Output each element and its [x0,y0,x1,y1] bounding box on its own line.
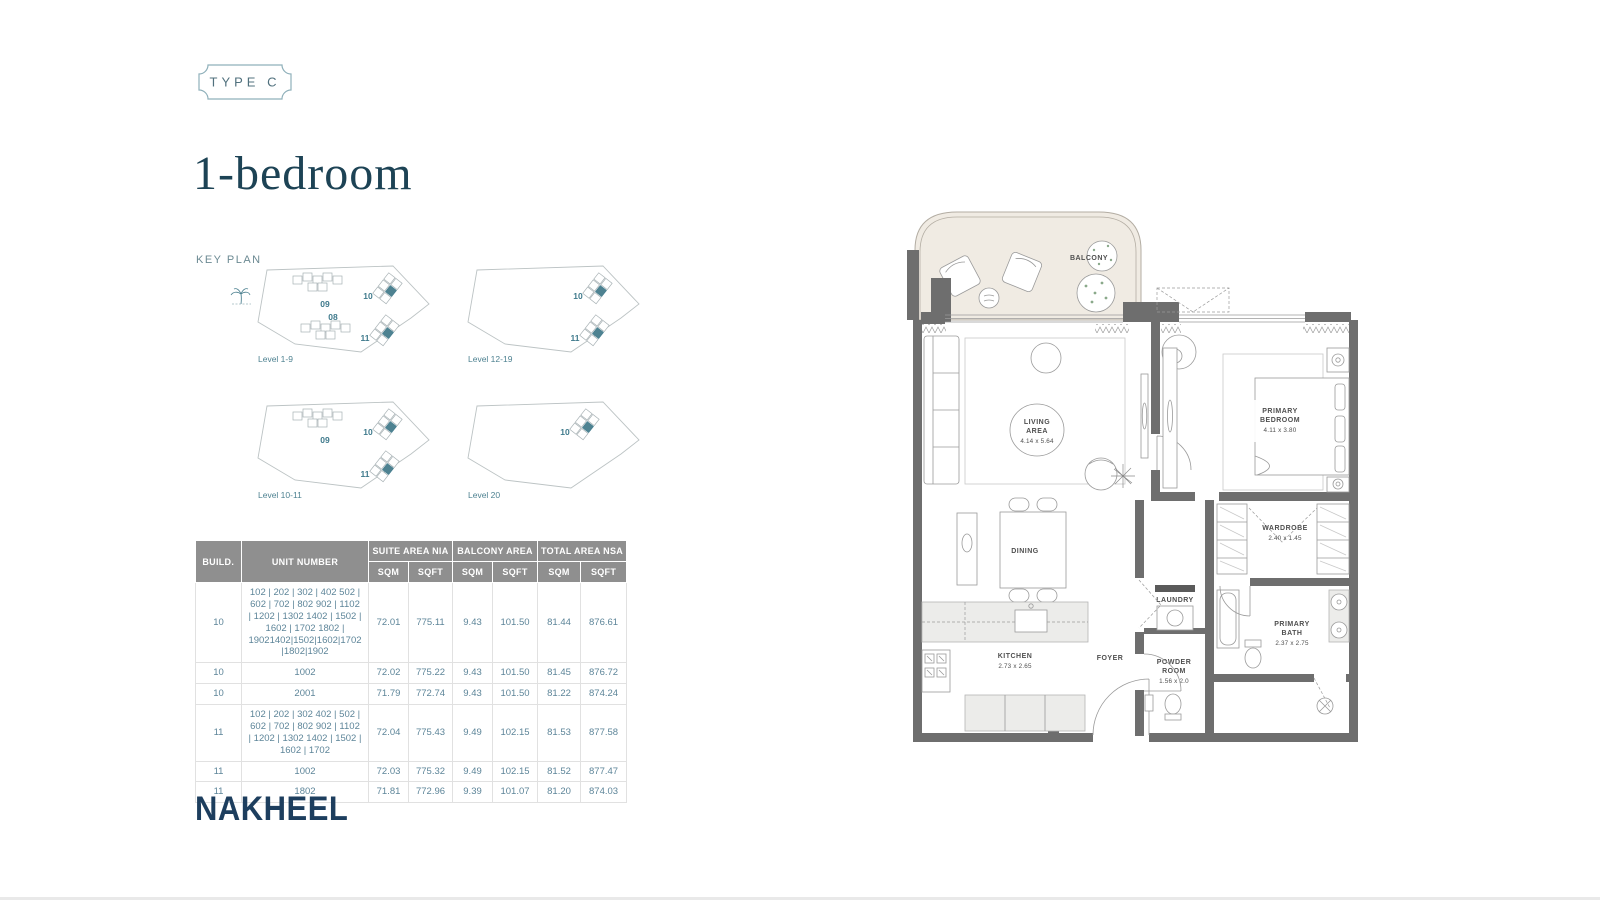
bath-label-2: BATH [1282,630,1303,637]
laundry-label: LAUNDRY [1156,597,1193,604]
dining-chair [1037,498,1057,511]
pillow [1335,416,1345,442]
cell-unit-number: 102 | 202 | 302 | 402 502 | 602 | 702 | … [242,583,369,663]
bathtub [1217,590,1239,648]
dining-chair [1037,589,1057,602]
cell-total-sqm: 81.20 [538,782,581,803]
cell-suite-sqft: 775.22 [409,663,453,684]
building-label-11: 11 [361,333,370,343]
cell-balcony-sqm: 9.39 [453,782,493,803]
bedroom-label-1: PRIMARY [1262,408,1298,415]
col-header-unit: UNIT NUMBER [242,541,369,583]
table-row: 10 2001 71.79 772.74 9.43 101.50 81.22 8… [196,684,627,705]
nakheel-logo: NAKHEEL [195,789,348,829]
cell-total-sqm: 81.53 [538,705,581,762]
cell-total-sqft: 874.24 [581,684,627,705]
nightstand [1327,477,1349,492]
balcony-label: BALCONY [1070,255,1108,262]
page-title: 1-bedroom [193,146,413,201]
building-label-09: 09 [320,435,330,445]
cell-total-sqft: 877.47 [581,761,627,782]
bath-vanity [1329,590,1349,642]
cell-suite-sqft: 775.11 [409,583,453,663]
cell-balcony-sqm: 9.43 [453,583,493,663]
primary-bedroom-room: PRIMARY BEDROOM 4.11 x 3.80 [1157,335,1349,492]
cell-build: 11 [196,705,242,762]
laundry-room: LAUNDRY [1139,580,1195,630]
cell-suite-sqft: 772.74 [409,684,453,705]
cell-suite-sqm: 72.04 [369,705,409,762]
cell-balcony-sqm: 9.43 [453,684,493,705]
keyplan-level-10-11: 09 10 11 Level 10-11 [225,398,437,502]
cell-balcony-sqft: 102.15 [493,705,538,762]
col-group-suite: SUITE AREA NIA [369,541,453,562]
powder-dims: 1.56 x 2.0 [1159,678,1189,685]
area-table: BUILD. UNIT NUMBER SUITE AREA NIA BALCON… [195,541,627,803]
cell-build: 10 [196,583,242,663]
cell-balcony-sqm: 9.43 [453,663,493,684]
bedroom-dims: 4.11 x 3.80 [1264,427,1297,434]
keyplan-level-12-19: 10 11 Level 12-19 [435,262,647,366]
col-header-sqft: SQFT [493,562,538,583]
cell-build: 11 [196,761,242,782]
cell-suite-sqm: 72.03 [369,761,409,782]
cell-balcony-sqft: 102.15 [493,761,538,782]
walls [907,250,1358,742]
living-dims: 4.14 x 5.64 [1020,438,1054,445]
kitchen-room: KITCHEN 2.73 x 2.65 [922,602,1088,731]
table-row: 10 1002 72.02 775.22 9.43 101.50 81.45 8… [196,663,627,684]
col-header-build: BUILD. [196,541,242,583]
kitchen-sink [1015,610,1047,632]
cell-unit-number: 2001 [242,684,369,705]
wardrobe-dims: 2.40 x 1.45 [1268,535,1302,542]
cell-build: 10 [196,663,242,684]
toilet [1165,694,1181,720]
type-badge: TYPE C [196,62,294,107]
building-label-11: 11 [571,333,580,343]
building-label-10: 10 [560,427,570,437]
cell-balcony-sqm: 9.49 [453,705,493,762]
nightstand [1327,348,1349,372]
col-header-sqm: SQM [453,562,493,583]
kitchen-cabinets [965,695,1085,731]
bedroom-label-2: BEDROOM [1260,417,1300,424]
col-header-sqm: SQM [369,562,409,583]
wardrobe-unit [1217,504,1247,574]
pillow [1335,446,1345,472]
cell-unit-number: 1002 [242,663,369,684]
cell-build: 10 [196,684,242,705]
building-label-09: 09 [320,299,330,309]
col-header-sqft: SQFT [581,562,627,583]
cell-total-sqft: 874.03 [581,782,627,803]
cell-total-sqm: 81.22 [538,684,581,705]
cell-suite-sqft: 775.32 [409,761,453,782]
pillow [1335,384,1345,410]
wardrobe-unit [1317,504,1349,574]
cell-total-sqft: 876.72 [581,663,627,684]
cell-total-sqm: 81.45 [538,663,581,684]
badge-label: TYPE C [210,75,281,90]
keyplan-level-20: 10 Level 20 [435,398,647,502]
col-header-sqft: SQFT [409,562,453,583]
dining-chair [1009,498,1029,511]
col-header-sqm: SQM [538,562,581,583]
coffee-table [1031,343,1061,373]
cell-total-sqm: 81.44 [538,583,581,663]
living-label-1: LIVING [1024,419,1050,426]
dining-room: DINING [957,498,1066,602]
building-label-10: 10 [363,291,373,301]
keyplan-level-label: Level 12-19 [468,354,513,364]
wardrobe-label: WARDROBE [1262,525,1308,532]
dining-label: DINING [1011,548,1039,555]
keyplan-level-label: Level 10-11 [258,490,302,500]
cabinet [957,513,977,585]
floor-plan: BALCONY [905,198,1365,750]
keyplan-level-1-9: 09 10 08 11 Level 1-9 [225,262,437,366]
kitchen-label: KITCHEN [998,653,1033,660]
kitchen-dims: 2.73 x 2.65 [998,663,1032,670]
building-label-11: 11 [361,469,370,479]
cell-suite-sqft: 775.43 [409,705,453,762]
cell-balcony-sqft: 101.50 [493,583,538,663]
keyplan-level-label: Level 1-9 [258,354,293,364]
keyplan-level-label: Level 20 [468,490,500,500]
table-body: 10 102 | 202 | 302 | 402 502 | 602 | 702… [196,583,627,803]
bath-label-1: PRIMARY [1274,621,1310,628]
cell-total-sqm: 81.52 [538,761,581,782]
table-row: 10 102 | 202 | 302 | 402 502 | 602 | 702… [196,583,627,663]
bath-dims: 2.37 x 2.75 [1275,640,1309,647]
toilet [1245,640,1261,668]
area-table-container: BUILD. UNIT NUMBER SUITE AREA NIA BALCON… [195,541,627,803]
cell-suite-sqm: 72.02 [369,663,409,684]
cell-balcony-sqft: 101.07 [493,782,538,803]
table-header: BUILD. UNIT NUMBER SUITE AREA NIA BALCON… [196,541,627,583]
col-group-balcony: BALCONY AREA [453,541,538,562]
bedroom-console [1163,348,1177,488]
table-row: 11 1002 72.03 775.32 9.49 102.15 81.52 8… [196,761,627,782]
cell-suite-sqm: 71.81 [369,782,409,803]
cell-suite-sqm: 72.01 [369,583,409,663]
cell-balcony-sqm: 9.49 [453,761,493,782]
cell-suite-sqft: 772.96 [409,782,453,803]
stove [922,650,950,692]
armchair [1085,458,1117,490]
cell-balcony-sqft: 101.50 [493,663,538,684]
cell-unit-number: 102 | 202 | 302 402 | 502 | 602 | 702 | … [242,705,369,762]
powder-sink [1145,695,1153,711]
primary-bath-room: PRIMARY BATH 2.37 x 2.75 [1217,586,1349,714]
washer [1157,606,1193,630]
cell-balcony-sqft: 101.50 [493,684,538,705]
living-area-room: LIVING AREA 4.14 x 5.64 [924,336,1148,490]
building-label-10: 10 [363,427,373,437]
cell-total-sqft: 876.61 [581,583,627,663]
wardrobe-room: WARDROBE 2.40 x 1.45 [1217,504,1349,574]
living-label-2: AREA [1026,428,1048,435]
palm-icon [231,289,251,304]
powder-room: POWDER ROOM 1.56 x 2.0 [1144,654,1191,720]
balcony-table [979,288,999,308]
table-row: 11 102 | 202 | 302 402 | 502 | 602 | 702… [196,705,627,762]
col-group-total: TOTAL AREA NSA [538,541,627,562]
powder-label-1: POWDER [1157,659,1192,666]
foyer-label: FOYER [1097,655,1124,662]
cell-suite-sqm: 71.79 [369,684,409,705]
building-label-08: 08 [328,312,338,322]
cell-unit-number: 1002 [242,761,369,782]
cell-total-sqft: 877.58 [581,705,627,762]
building-label-10: 10 [573,291,583,301]
shower [1314,678,1333,714]
dining-chair [1009,589,1029,602]
